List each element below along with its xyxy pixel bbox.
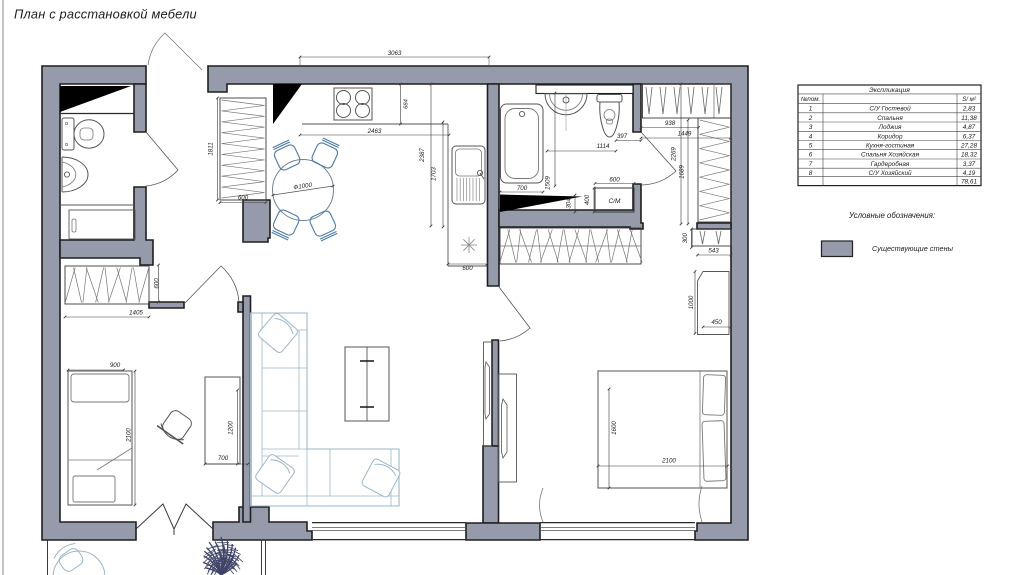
svg-text:600: 600 [238, 195, 249, 202]
svg-text:1200: 1200 [228, 421, 235, 435]
svg-text:4,87: 4,87 [963, 124, 976, 131]
svg-text:1811: 1811 [208, 142, 215, 155]
svg-text:397: 397 [617, 133, 628, 140]
svg-text:450: 450 [711, 319, 722, 326]
svg-text:С/У Гостевой: С/У Гостевой [869, 105, 911, 113]
svg-text:1703: 1703 [431, 167, 438, 181]
svg-text:8: 8 [809, 170, 813, 177]
svg-text:4: 4 [809, 133, 813, 140]
svg-text:1405: 1405 [129, 310, 143, 317]
svg-text:5: 5 [809, 143, 813, 150]
svg-text:Кухня-гостиная: Кухня-гостиная [866, 143, 915, 150]
svg-text:1509: 1509 [545, 176, 552, 190]
svg-text:11,38: 11,38 [961, 115, 977, 122]
svg-text:3: 3 [809, 124, 813, 131]
svg-text:900: 900 [110, 362, 121, 369]
svg-text:2100: 2100 [126, 428, 133, 443]
svg-text:684: 684 [404, 99, 410, 109]
svg-text:2,83: 2,83 [962, 106, 976, 113]
svg-text:№пом.: №пом. [801, 96, 821, 103]
svg-text:S/ м²: S/ м² [962, 96, 977, 103]
svg-text:1000: 1000 [688, 295, 695, 309]
svg-text:938: 938 [665, 120, 676, 127]
svg-text:Экспликация: Экспликация [869, 87, 910, 94]
svg-text:700: 700 [517, 185, 528, 192]
svg-text:400: 400 [584, 194, 591, 205]
svg-text:Спальня Хозяйская: Спальня Хозяйская [861, 151, 920, 159]
svg-text:6: 6 [809, 152, 813, 159]
svg-text:3063: 3063 [388, 50, 402, 57]
svg-text:Коридор: Коридор [877, 132, 903, 140]
svg-text:2269: 2269 [671, 147, 678, 162]
svg-text:Гардеробная: Гардеробная [871, 160, 910, 168]
svg-text:6,37: 6,37 [963, 133, 976, 140]
svg-text:С/У Хозяйский: С/У Хозяйский [868, 169, 912, 177]
svg-text:1449: 1449 [678, 131, 692, 138]
svg-text:27,28: 27,28 [960, 143, 977, 150]
svg-text:1600: 1600 [611, 421, 618, 435]
svg-text:600: 600 [462, 265, 473, 272]
svg-text:4,19: 4,19 [963, 170, 976, 177]
svg-text:Лоджия: Лоджия [878, 123, 902, 131]
svg-text:2463: 2463 [367, 128, 382, 135]
svg-text:700: 700 [218, 455, 229, 462]
svg-text:7: 7 [809, 161, 813, 168]
svg-text:С/М: С/М [609, 198, 622, 205]
svg-text:600: 600 [154, 278, 161, 289]
svg-text:304: 304 [566, 198, 573, 209]
svg-text:1: 1 [809, 106, 813, 113]
svg-text:Условные обозначения:: Условные обозначения: [848, 211, 935, 220]
svg-text:Спальня: Спальня [877, 115, 903, 122]
svg-text:300: 300 [682, 233, 689, 244]
svg-text:18,32: 18,32 [961, 152, 977, 159]
svg-text:1114: 1114 [597, 143, 610, 150]
svg-text:2: 2 [808, 115, 813, 122]
svg-text:2100: 2100 [661, 458, 676, 465]
svg-text:3,37: 3,37 [963, 161, 976, 168]
svg-text:2387: 2387 [419, 148, 426, 163]
svg-text:План с расстановкой мебели: План с расстановкой мебели [14, 7, 197, 22]
svg-text:600: 600 [609, 177, 620, 184]
svg-text:543: 543 [708, 248, 719, 255]
svg-text:78,61: 78,61 [961, 178, 977, 185]
svg-text:1689: 1689 [679, 165, 686, 179]
svg-text:Существующие стены: Существующие стены [872, 244, 954, 253]
